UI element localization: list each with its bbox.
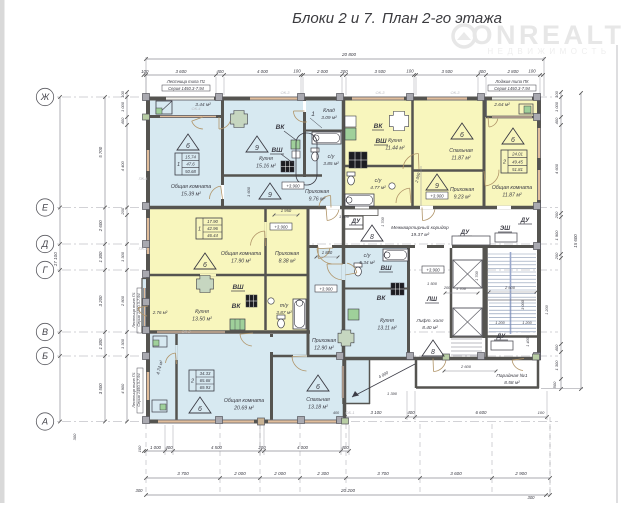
svg-text:1 200: 1 200 [545,304,549,314]
svg-text:4 000: 4 000 [297,445,309,450]
svg-text:1 500: 1 500 [427,281,438,286]
svg-text:3 600: 3 600 [176,69,188,74]
svg-text:1: 1 [177,162,180,168]
svg-text:9.23 м²: 9.23 м² [454,195,471,201]
svg-text:Парадная №1: Парадная №1 [496,373,528,379]
svg-text:1 390: 1 390 [387,391,398,396]
svg-text:65.68: 65.68 [200,378,211,383]
svg-text:6: 6 [460,132,464,139]
svg-text:20.69 м²: 20.69 м² [233,406,254,412]
svg-text:69.93: 69.93 [200,385,211,390]
svg-text:1 300: 1 300 [120,338,125,349]
svg-text:1 000: 1 000 [120,101,125,112]
svg-text:1 700: 1 700 [381,216,385,226]
svg-text:400: 400 [333,411,340,415]
svg-text:3 500: 3 500 [375,69,387,74]
svg-text:17 100: 17 100 [53,252,58,266]
svg-text:17.90 м²: 17.90 м² [231,259,251,265]
svg-text:т/у: т/у [280,303,289,309]
svg-text:15.39 м²: 15.39 м² [181,192,201,198]
svg-text:3 100: 3 100 [371,410,383,415]
svg-text:Клад: Клад [323,108,335,114]
svg-text:Спальная: Спальная [449,148,473,154]
svg-text:4 500: 4 500 [211,445,223,450]
svg-text:100: 100 [538,410,545,415]
svg-text:17.90: 17.90 [207,219,218,224]
svg-text:2 800: 2 800 [120,295,125,307]
svg-text:Прихожая: Прихожая [275,251,299,257]
svg-text:1 200: 1 200 [522,321,532,325]
svg-text:ОБ-1: ОБ-1 [345,410,354,415]
svg-text:8.58 м²: 8.58 м² [504,380,520,386]
svg-text:1 800: 1 800 [322,250,333,255]
svg-text:6: 6 [316,384,320,391]
svg-text:Прихожая: Прихожая [312,338,336,344]
svg-text:50.68: 50.68 [185,169,196,174]
svg-text:ВШ: ВШ [380,265,392,272]
svg-text:200: 200 [554,211,559,219]
svg-text:100: 100 [554,90,559,97]
svg-text:Прихожая: Прихожая [450,187,474,193]
svg-text:1 300: 1 300 [554,360,559,371]
svg-text:400: 400 [554,117,559,124]
svg-text:100: 100 [137,445,142,452]
svg-text:500: 500 [552,381,557,388]
svg-text:300: 300 [72,433,77,440]
svg-text:2 900: 2 900 [514,471,527,476]
svg-text:300: 300 [528,495,536,500]
svg-text:8.38 м²: 8.38 м² [279,259,296,265]
svg-text:Прихожая: Прихожая [305,189,329,195]
svg-text:с/у: с/у [375,178,382,184]
svg-text:Лоджия типа ПК: Лоджия типа ПК [494,79,529,84]
svg-text:19.37 м²: 19.37 м² [411,232,430,238]
svg-text:Спальная: Спальная [306,397,330,403]
svg-text:200: 200 [554,252,559,260]
svg-text:ВК: ВК [374,123,384,130]
svg-text:4 000: 4 000 [257,69,269,74]
svg-text:42.96: 42.96 [207,226,218,231]
svg-text:1 800: 1 800 [339,214,350,219]
svg-text:ДУ: ДУ [520,218,530,224]
svg-text:6: 6 [511,137,515,144]
svg-text:400: 400 [341,445,349,450]
svg-text:9: 9 [255,145,259,152]
svg-text:100: 100 [528,69,536,74]
svg-text:ДУ: ДУ [351,219,361,225]
svg-text:4 600: 4 600 [554,163,559,174]
svg-text:ОК-3: ОК-3 [450,90,460,95]
svg-text:3 700: 3 700 [377,471,389,476]
svg-text:13.11 м²: 13.11 м² [377,326,397,332]
svg-text:+3.900: +3.900 [426,268,440,273]
svg-text:400: 400 [216,69,224,74]
svg-text:ЛШ: ЛШ [426,297,437,303]
svg-text:Лестница типа П1: Лестница типа П1 [166,79,205,84]
svg-text:3 000: 3 000 [521,299,525,309]
svg-text:2 600: 2 600 [504,285,516,290]
svg-text:400: 400 [478,69,486,74]
svg-text:3 700: 3 700 [177,471,189,476]
svg-text:3 500: 3 500 [442,69,454,74]
svg-text:1 300: 1 300 [98,251,103,263]
svg-text:ВК: ВК [276,124,286,131]
svg-text:Общая комната: Общая комната [171,184,211,190]
svg-text:Общая комната: Общая комната [492,185,532,191]
svg-text:8.40 м²: 8.40 м² [422,325,438,331]
svg-text:Серия 1450.3-7.94: Серия 1450.3-7.94 [168,86,204,91]
svg-text:8: 8 [370,234,374,241]
svg-text:51.81: 51.81 [512,167,523,172]
svg-text:4 400: 4 400 [120,160,125,171]
svg-text:100: 100 [141,69,149,74]
svg-text:9.76 м²: 9.76 м² [309,197,326,203]
svg-text:12.90 м²: 12.90 м² [314,346,334,352]
svg-text:1 950: 1 950 [281,208,292,213]
svg-text:2 000: 2 000 [316,69,329,74]
svg-text:Б: Б [42,351,48,361]
svg-text:1 300: 1 300 [98,338,103,350]
svg-text:11.87 м²: 11.87 м² [502,193,522,199]
svg-text:6: 6 [198,406,202,413]
svg-text:В: В [42,327,48,337]
svg-text:3 500: 3 500 [98,383,103,395]
svg-text:Кухня: Кухня [195,309,209,315]
svg-text:2 600: 2 600 [98,220,103,233]
svg-text:6 600: 6 600 [476,410,488,415]
svg-text:6: 6 [203,262,207,269]
svg-text:ВК: ВК [377,295,387,302]
svg-text:ВШ: ВШ [232,284,244,291]
svg-text:9: 9 [268,192,272,199]
svg-text:2.64 м²: 2.64 м² [493,102,510,108]
svg-text:3 200: 3 200 [98,295,103,307]
svg-text:А: А [41,417,48,427]
svg-text:1 200: 1 200 [495,321,505,325]
svg-text:2 300: 2 300 [316,471,329,476]
svg-text:400: 400 [554,344,559,351]
svg-text:ОК-2: ОК-2 [181,329,191,334]
svg-text:100: 100 [293,69,301,74]
svg-text:ДУ: ДУ [496,334,506,340]
svg-text:с/у: с/у [328,154,335,160]
svg-text:ОК-4: ОК-4 [191,106,201,111]
svg-text:200: 200 [339,69,348,74]
svg-text:Ж: Ж [40,92,50,102]
svg-text:100: 100 [406,69,414,74]
svg-text:13.18 м²: 13.18 м² [308,405,328,411]
svg-text:4.77 м²: 4.77 м² [370,185,386,191]
svg-text:Серия 1450.3-7.94: Серия 1450.3-7.94 [494,86,530,91]
svg-text:400: 400 [407,410,415,415]
svg-text:400: 400 [165,445,173,450]
svg-text:6: 6 [186,143,190,150]
svg-text:ПК-4: ПК-4 [139,176,149,181]
svg-text:1 400: 1 400 [526,336,530,346]
svg-text:Блоки 2 и 7.: Блоки 2 и 7. [292,10,376,27]
svg-text:20 800: 20 800 [341,52,356,57]
svg-text:ДУ: ДУ [460,230,470,236]
svg-text:Общая комната: Общая комната [224,398,264,404]
svg-text:1: 1 [311,111,315,118]
svg-text:46.44: 46.44 [207,233,218,238]
svg-text:ОК-3: ОК-3 [280,90,290,95]
svg-text:2.76 м²: 2.76 м² [152,310,168,315]
svg-text:Серия 1450.3-7.94: Серия 1450.3-7.94 [136,373,141,407]
svg-text:2: 2 [502,160,506,166]
svg-text:Д: Д [41,239,49,249]
svg-text:3 600: 3 600 [450,471,462,476]
svg-text:+3.900: +3.900 [286,184,300,189]
svg-text:ВК: ВК [232,303,242,310]
svg-text:Кухня: Кухня [388,138,402,144]
svg-text:5.34 м²: 5.34 м² [359,260,375,266]
svg-text:8: 8 [431,349,435,356]
svg-text:Межквартирный коридор: Межквартирный коридор [391,224,449,231]
svg-text:24.01: 24.01 [511,152,523,157]
svg-text:1 600: 1 600 [246,186,251,197]
svg-text:Е: Е [42,203,49,213]
svg-text:1 700: 1 700 [456,286,467,291]
svg-text:Лифт. холл: Лифт. холл [416,318,444,324]
svg-text:1: 1 [198,227,201,233]
svg-text:9: 9 [435,183,439,190]
svg-text:47.6: 47.6 [186,162,195,167]
svg-text:НЕДВИЖИМОСТЬ: НЕДВИЖИМОСТЬ [487,47,610,56]
svg-text:1 900: 1 900 [554,230,559,241]
svg-text:3.09 м²: 3.09 м² [321,115,337,121]
svg-text:с/у: с/у [364,253,371,259]
svg-text:+3.900: +3.900 [274,225,288,230]
svg-text:5 700: 5 700 [98,146,103,158]
svg-text:11.44 м²: 11.44 м² [385,146,405,152]
svg-text:ВШ: ВШ [375,138,387,145]
svg-text:2: 2 [190,379,194,385]
svg-text:3.85 м²: 3.85 м² [323,161,339,167]
svg-text:200: 200 [257,445,266,450]
svg-text:34.33: 34.33 [200,371,211,376]
svg-text:4 900: 4 900 [120,383,125,394]
svg-text:3.87 м²: 3.87 м² [276,310,292,316]
svg-text:49.45: 49.45 [512,159,523,164]
svg-text:15 600: 15 600 [573,234,578,248]
svg-text:100: 100 [120,90,125,97]
svg-text:15.74: 15.74 [185,154,196,159]
svg-text:ONREALT: ONREALT [472,20,625,50]
svg-text:ЭШ: ЭШ [500,226,510,232]
svg-text:13.50 м²: 13.50 м² [192,317,212,323]
svg-text:20 200: 20 200 [340,488,355,493]
svg-text:2 000: 2 000 [233,471,246,476]
svg-text:200: 200 [443,286,451,290]
svg-text:+3.900: +3.900 [430,194,444,199]
svg-text:2 000: 2 000 [273,471,286,476]
svg-text:+3.900: +3.900 [319,287,333,292]
svg-text:2 800: 2 800 [507,69,520,74]
svg-text:Кухня: Кухня [380,318,394,324]
svg-text:11.87 м²: 11.87 м² [451,156,471,162]
svg-text:1 000: 1 000 [150,445,162,450]
svg-text:1 000: 1 000 [554,101,559,112]
svg-text:Кухня: Кухня [259,156,273,162]
svg-text:1 300: 1 300 [120,251,125,262]
svg-text:ПК-4: ПК-4 [139,246,149,251]
svg-text:1 700: 1 700 [475,270,479,280]
svg-text:Общая комната: Общая комната [221,251,261,257]
svg-text:ОК-3: ОК-3 [375,90,385,95]
svg-text:400: 400 [120,117,125,124]
svg-text:300: 300 [136,488,144,493]
svg-text:ВШ: ВШ [271,147,283,154]
svg-text:2 600: 2 600 [460,364,472,369]
svg-text:15.16 м²: 15.16 м² [256,164,276,170]
svg-text:200: 200 [120,207,125,215]
